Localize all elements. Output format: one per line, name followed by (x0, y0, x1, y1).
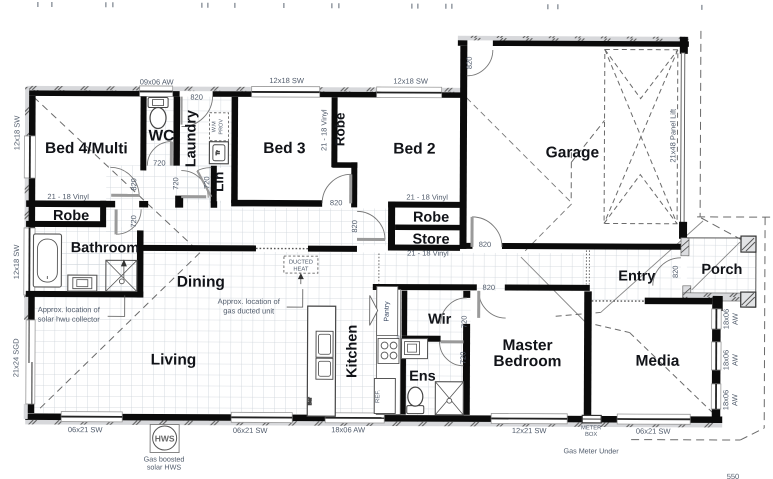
svg-text:BOX: BOX (585, 432, 597, 438)
svg-text:12x18 SW: 12x18 SW (269, 76, 305, 85)
svg-text:820: 820 (190, 93, 203, 102)
svg-text:09x06 AW: 09x06 AW (140, 77, 175, 86)
svg-text:820: 820 (465, 57, 474, 70)
svg-text:solar hwu collector: solar hwu collector (38, 314, 101, 323)
svg-text:PROV: PROV (218, 119, 224, 135)
svg-text:820: 820 (330, 198, 343, 207)
svg-text:Gas Meter Under: Gas Meter Under (564, 446, 620, 455)
svg-text:DUCTED: DUCTED (289, 260, 313, 266)
svg-text:REF.: REF. (375, 390, 381, 403)
svg-text:820: 820 (483, 283, 496, 292)
svg-text:Dining: Dining (177, 274, 225, 291)
svg-text:18x06: 18x06 (721, 350, 730, 370)
svg-text:12x18 SW: 12x18 SW (12, 244, 21, 280)
svg-text:21 - 18 Vinyl: 21 - 18 Vinyl (47, 192, 89, 201)
svg-text:Lin: Lin (211, 172, 226, 192)
svg-text:Wir: Wir (428, 312, 452, 328)
svg-text:Pantry: Pantry (384, 301, 391, 322)
svg-text:Tr: Tr (215, 150, 221, 155)
svg-text:Bathroom: Bathroom (71, 240, 140, 256)
svg-text:820: 820 (350, 220, 359, 233)
svg-text:Media: Media (635, 353, 679, 370)
svg-text:Bed 4/Multi: Bed 4/Multi (45, 140, 128, 157)
svg-text:Robe: Robe (332, 112, 347, 146)
svg-text:820: 820 (129, 178, 138, 191)
svg-text:W.M: W.M (211, 121, 217, 132)
svg-text:720: 720 (458, 352, 467, 365)
svg-text:Living: Living (151, 351, 197, 368)
svg-text:06x21 SW: 06x21 SW (68, 425, 104, 434)
svg-text:AW: AW (730, 353, 739, 366)
svg-text:Laundry: Laundry (183, 110, 199, 167)
svg-text:AW: AW (731, 312, 740, 325)
svg-text:Store: Store (412, 232, 449, 248)
svg-text:720: 720 (202, 176, 211, 189)
svg-text:HEAT: HEAT (293, 267, 309, 273)
svg-text:21 - 18 Vinyl: 21 - 18 Vinyl (406, 193, 448, 202)
svg-text:06x21 SW: 06x21 SW (636, 427, 672, 436)
svg-text:Approx. location of: Approx. location of (38, 305, 101, 314)
svg-text:820: 820 (671, 265, 680, 278)
svg-text:solar HWS: solar HWS (147, 462, 182, 471)
svg-text:820: 820 (479, 240, 492, 249)
svg-text:Bedroom: Bedroom (493, 353, 561, 370)
svg-text:Entry: Entry (618, 269, 655, 285)
svg-text:18x06: 18x06 (722, 309, 731, 329)
svg-text:21x48 Panel Lift: 21x48 Panel Lift (668, 108, 677, 163)
svg-text:720: 720 (129, 215, 138, 228)
svg-text:Porch: Porch (701, 262, 742, 278)
svg-text:720: 720 (171, 177, 180, 190)
svg-text:METER: METER (581, 425, 601, 431)
svg-text:Bed 2: Bed 2 (393, 141, 435, 158)
svg-text:550: 550 (727, 472, 740, 479)
svg-text:720: 720 (153, 158, 166, 167)
svg-text:Kitchen: Kitchen (344, 325, 360, 378)
svg-text:Bar: Bar (307, 397, 313, 405)
svg-text:Approx. location of: Approx. location of (218, 297, 281, 306)
svg-text:Bed 3: Bed 3 (263, 140, 306, 157)
svg-text:18x06 AW: 18x06 AW (331, 425, 366, 434)
svg-text:Ens: Ens (409, 369, 436, 385)
svg-text:WC: WC (149, 127, 175, 144)
svg-text:Robe: Robe (53, 208, 89, 224)
svg-text:21x24 SGD: 21x24 SGD (11, 338, 20, 377)
svg-text:AW: AW (730, 393, 739, 406)
svg-text:720: 720 (460, 316, 469, 329)
svg-text:06x21 SW: 06x21 SW (233, 426, 269, 435)
svg-text:12x18 SW: 12x18 SW (12, 115, 21, 151)
svg-text:Garage: Garage (546, 144, 600, 161)
svg-text:HWS: HWS (155, 433, 175, 443)
svg-text:gas ducted unit: gas ducted unit (223, 306, 275, 315)
svg-text:21 - 18 Vinyl: 21 - 18 Vinyl (319, 109, 328, 151)
svg-text:Robe: Robe (413, 210, 449, 226)
svg-text:Master: Master (503, 337, 553, 354)
svg-text:12x21 SW: 12x21 SW (512, 426, 548, 435)
svg-text:18x06: 18x06 (721, 390, 730, 410)
svg-text:12x18 SW: 12x18 SW (393, 77, 429, 86)
svg-text:21 - 18 Vinyl: 21 - 18 Vinyl (407, 249, 449, 258)
